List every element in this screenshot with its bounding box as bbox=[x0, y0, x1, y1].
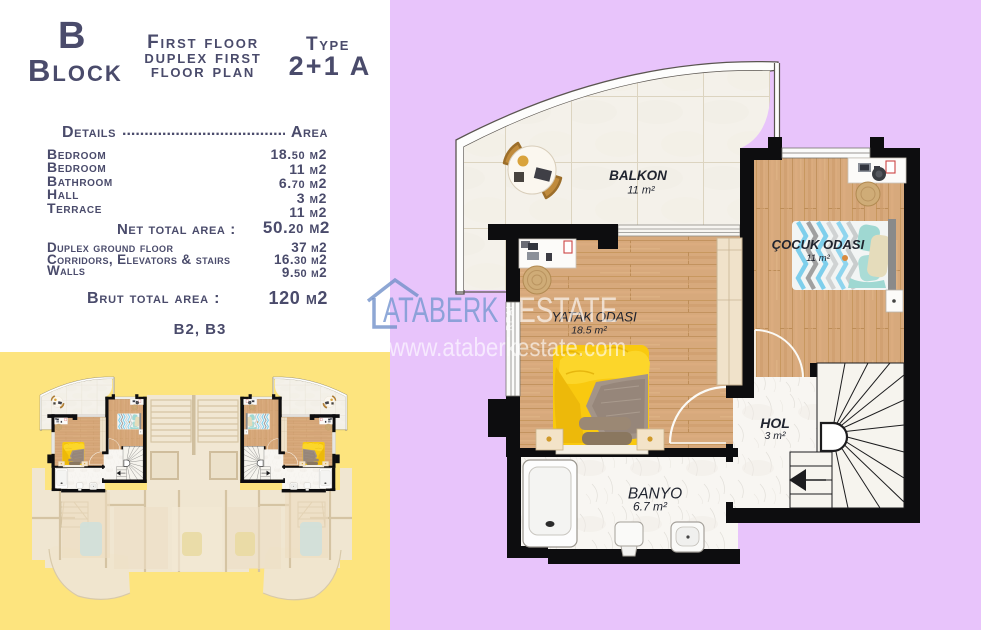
svg-text:3 m²: 3 m² bbox=[765, 430, 787, 442]
svg-text:11 m²: 11 m² bbox=[627, 185, 655, 197]
svg-text:ÇOCUK ODASI: ÇOCUK ODASI bbox=[772, 237, 865, 252]
svg-text:HOL: HOL bbox=[760, 415, 790, 431]
svg-text:6.7 m²: 6.7 m² bbox=[633, 500, 668, 514]
svg-text:REAL: REAL bbox=[505, 303, 516, 331]
svg-text:ESTATE: ESTATE bbox=[518, 290, 618, 329]
svg-text:11 m²: 11 m² bbox=[806, 253, 830, 264]
svg-text:BALKON: BALKON bbox=[609, 168, 667, 183]
svg-text:ATABERK: ATABERK bbox=[383, 291, 499, 330]
svg-text:www.ataberkestate.com: www.ataberkestate.com bbox=[388, 333, 626, 362]
